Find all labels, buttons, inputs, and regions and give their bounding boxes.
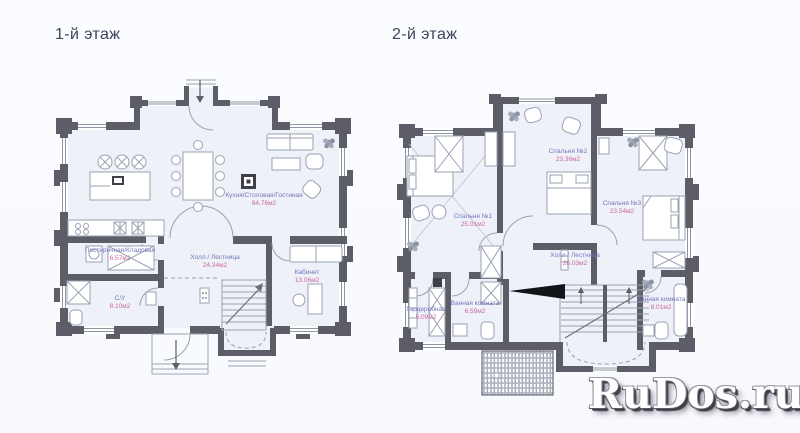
closet-icon: [653, 252, 685, 268]
fireplace-icon: [241, 174, 256, 189]
sink-icon: [643, 325, 654, 336]
radiator-icon: [561, 250, 568, 270]
page: 1-й этаж 2-й этаж: [0, 0, 800, 433]
study-sofa-icon: [290, 246, 342, 262]
floor-2-terrace-hatch: [482, 351, 553, 395]
kitchen-counter-icon: [68, 220, 164, 236]
desk-icon: [599, 138, 609, 154]
watermark-logo: RuDos.ru: [588, 372, 800, 417]
toilet-icon: [655, 322, 668, 339]
shower-icon: [67, 281, 90, 304]
bed-icon: [643, 196, 685, 240]
coffee-table-icon: [272, 158, 300, 170]
kitchen-lights-icon: [98, 155, 146, 169]
bathtub-icon: [674, 284, 687, 336]
closet-icon: [481, 246, 501, 278]
side-table-icon: [432, 205, 446, 219]
shower-icon: [481, 282, 501, 304]
floor-2-plan-drawing: [393, 88, 703, 398]
bedroom3-wardrobe-icon: [639, 136, 667, 170]
floor-1-plan-drawing: [50, 78, 355, 393]
toilet-icon: [481, 322, 494, 339]
armchair-icon: [306, 154, 323, 169]
sofa-icon: [267, 134, 313, 150]
floor-2-title: 2-й этаж: [392, 26, 457, 44]
bedroom1-wardrobe-icon: [435, 136, 463, 172]
kitchen-island-icon: [90, 172, 150, 200]
sink-icon: [146, 292, 156, 305]
desk-chair-icon: [293, 294, 305, 306]
bed-icon: [547, 172, 591, 214]
hall-fixture-icon: [200, 288, 209, 303]
sink-icon: [453, 324, 467, 336]
desk-icon: [308, 284, 322, 314]
toilet-icon: [70, 310, 82, 325]
floor-1-title: 1-й этаж: [55, 26, 120, 44]
